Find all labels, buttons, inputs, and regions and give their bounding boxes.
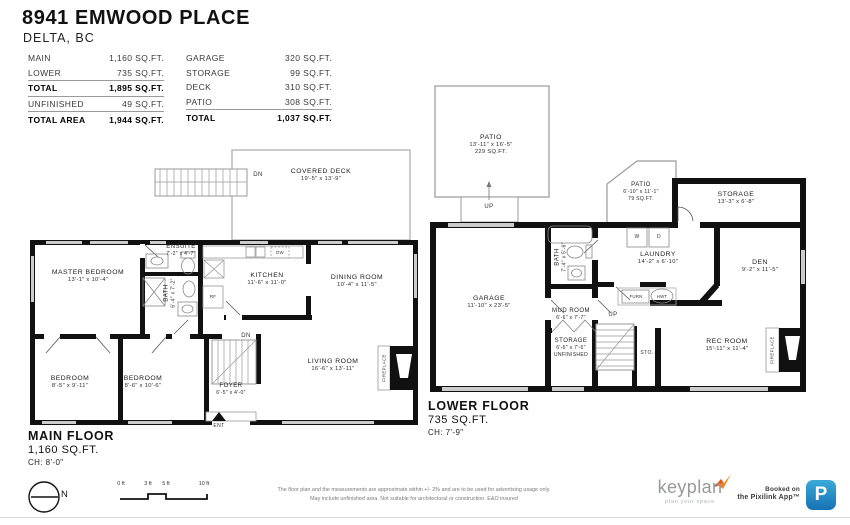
row-label: TOTAL	[28, 83, 58, 93]
storage-under-stairs-label: STO.	[640, 350, 653, 356]
row-value: 320 SQ.FT.	[285, 53, 332, 63]
fridge-label: RF	[210, 294, 216, 299]
room-label-patio-small: PATIO 6'-10" x 11'-1" 79 SQ.FT.	[623, 182, 658, 202]
hot-water-tank-label: HWT	[657, 294, 668, 299]
scale-bar	[120, 494, 207, 499]
row-value: 308 SQ.FT.	[285, 97, 332, 107]
north-label: N	[61, 489, 69, 500]
table-row: STORAGE99 SQ.FT.	[186, 66, 332, 81]
table-row: PATIO308 SQ.FT.	[186, 95, 332, 110]
row-label: TOTAL	[186, 113, 216, 123]
room-label-mud-room: MUD ROOM 6'-6" x 7'-7"	[552, 308, 590, 321]
table-row: MAIN1,160 SQ.FT.	[28, 51, 164, 66]
washer-label: W	[634, 234, 639, 240]
disclaimer-line-2: May include unfinished area. Not suitabl…	[256, 495, 572, 504]
table-row: UNFINISHED49 SQ.FT.	[28, 96, 164, 112]
area-table-left: MAIN1,160 SQ.FT. LOWER735 SQ.FT. TOTAL1,…	[28, 51, 164, 127]
row-label: UNFINISHED	[28, 99, 84, 109]
scale-tick-label: 5 ft	[162, 481, 170, 487]
disclaimer-text: The floor plan and the measurements are …	[256, 486, 572, 503]
row-value: 310 SQ.FT.	[285, 82, 332, 92]
scale-tick-label: 0 ft	[117, 481, 125, 487]
room-label-master-bedroom: MASTER BEDROOM 13'-1" x 10'-4"	[52, 269, 124, 283]
footer-divider	[0, 517, 850, 518]
fireplace-lower-label: FIREPLACE	[770, 336, 775, 363]
scale-tick-label: 3 ft	[144, 481, 152, 487]
row-label: DECK	[186, 82, 211, 92]
room-label-living-room: LIVING ROOM 16'-6" x 13'-11"	[308, 358, 359, 372]
room-label-storage-upper: STORAGE 13'-3" x 6'-8"	[718, 191, 755, 205]
dryer-label: D	[657, 234, 661, 240]
room-label-laundry: LAUNDRY 14'-2" x 6'-10"	[638, 251, 678, 265]
main-floor-title: MAIN FLOOR 1,160 SQ.FT. CH: 8'-0"	[28, 429, 114, 467]
room-label-garage: GARAGE 11'-10" x 23'-5"	[467, 295, 510, 309]
room-label-storage-lower: STORAGE 6'-6" x 7'-6" UNFINISHED	[554, 338, 588, 358]
scale-tick-label: 10 ft	[199, 481, 210, 487]
room-label-dining-room: DINING ROOM 10'-4" x 11'-5"	[331, 274, 383, 288]
room-label-bath-lower: BATH 7'-4" x 5'-6"	[555, 242, 568, 272]
table-row: TOTAL1,895 SQ.FT.	[28, 80, 164, 96]
row-label: PATIO	[186, 97, 212, 107]
patio-up-label: UP	[484, 204, 493, 210]
dishwasher-label: DW	[276, 250, 284, 255]
row-label: TOTAL AREA	[28, 115, 86, 125]
booked-on-text: Booked on the Pixilink App™	[710, 486, 800, 501]
room-label-covered-deck: COVERED DECK 19'-5" x 13'-9"	[291, 168, 351, 182]
room-label-bath-main: BATH 6'-4" x 7'-2"	[164, 278, 177, 308]
room-label-den: DEN 9'-2" x 11'-5"	[742, 259, 778, 273]
furnace-label: FURN	[630, 294, 643, 299]
floorplan-page: 8941 EMWOOD PLACE DELTA, BC MAIN1,160 SQ…	[0, 0, 850, 525]
room-label-ensuite: ENSUITE 7'-2" x 4'-7"	[166, 244, 196, 257]
room-label-rec-room: REC ROOM 15'-11" x 11'-4"	[706, 338, 749, 352]
row-label: LOWER	[28, 68, 61, 78]
row-value: 735 SQ.FT.	[117, 68, 164, 78]
row-label: STORAGE	[186, 68, 230, 78]
lower-floor-title: LOWER FLOOR 735 SQ.FT. CH: 7'-9"	[428, 399, 529, 437]
foyer-stairs-dn-label: DN	[241, 333, 250, 339]
row-value: 99 SQ.FT.	[290, 68, 332, 78]
entry-label: ENT	[213, 423, 224, 429]
fireplace-main-label: FIREPLACE	[382, 354, 387, 381]
table-row: DECK310 SQ.FT.	[186, 80, 332, 95]
room-label-kitchen: KITCHEN 11'-6" x 11'-0"	[247, 272, 286, 286]
row-value: 1,037 SQ.FT.	[277, 113, 332, 123]
row-label: MAIN	[28, 53, 51, 63]
area-table-right: GARAGE320 SQ.FT. STORAGE99 SQ.FT. DECK31…	[186, 51, 332, 125]
table-row: TOTAL AREA1,944 SQ.FT.	[28, 111, 164, 127]
row-value: 1,944 SQ.FT.	[109, 115, 164, 125]
room-label-bedroom-2: BEDROOM 8'-6" x 10'-6"	[124, 375, 163, 389]
disclaimer-line-1: The floor plan and the measurements are …	[256, 486, 572, 495]
pixilink-app-icon: P	[806, 480, 836, 510]
room-label-bedroom-1: BEDROOM 8'-5" x 9'-11"	[51, 375, 90, 389]
lower-stairs-up-label: UP	[608, 312, 617, 318]
row-label: GARAGE	[186, 53, 225, 63]
row-value: 1,160 SQ.FT.	[109, 53, 164, 63]
table-row: LOWER735 SQ.FT.	[28, 66, 164, 81]
room-label-foyer: FOYER 6'-5" x 4'-0"	[216, 383, 246, 396]
compass-icon	[29, 482, 59, 512]
row-value: 1,895 SQ.FT.	[109, 83, 164, 93]
stairs-dn-label: DN	[253, 172, 262, 178]
table-row: GARAGE320 SQ.FT.	[186, 51, 332, 66]
room-label-patio-large: PATIO 13'-11" x 16'-5" 229 SQ.FT.	[469, 134, 512, 155]
table-row: TOTAL1,037 SQ.FT.	[186, 109, 332, 125]
row-value: 49 SQ.FT.	[122, 99, 164, 109]
